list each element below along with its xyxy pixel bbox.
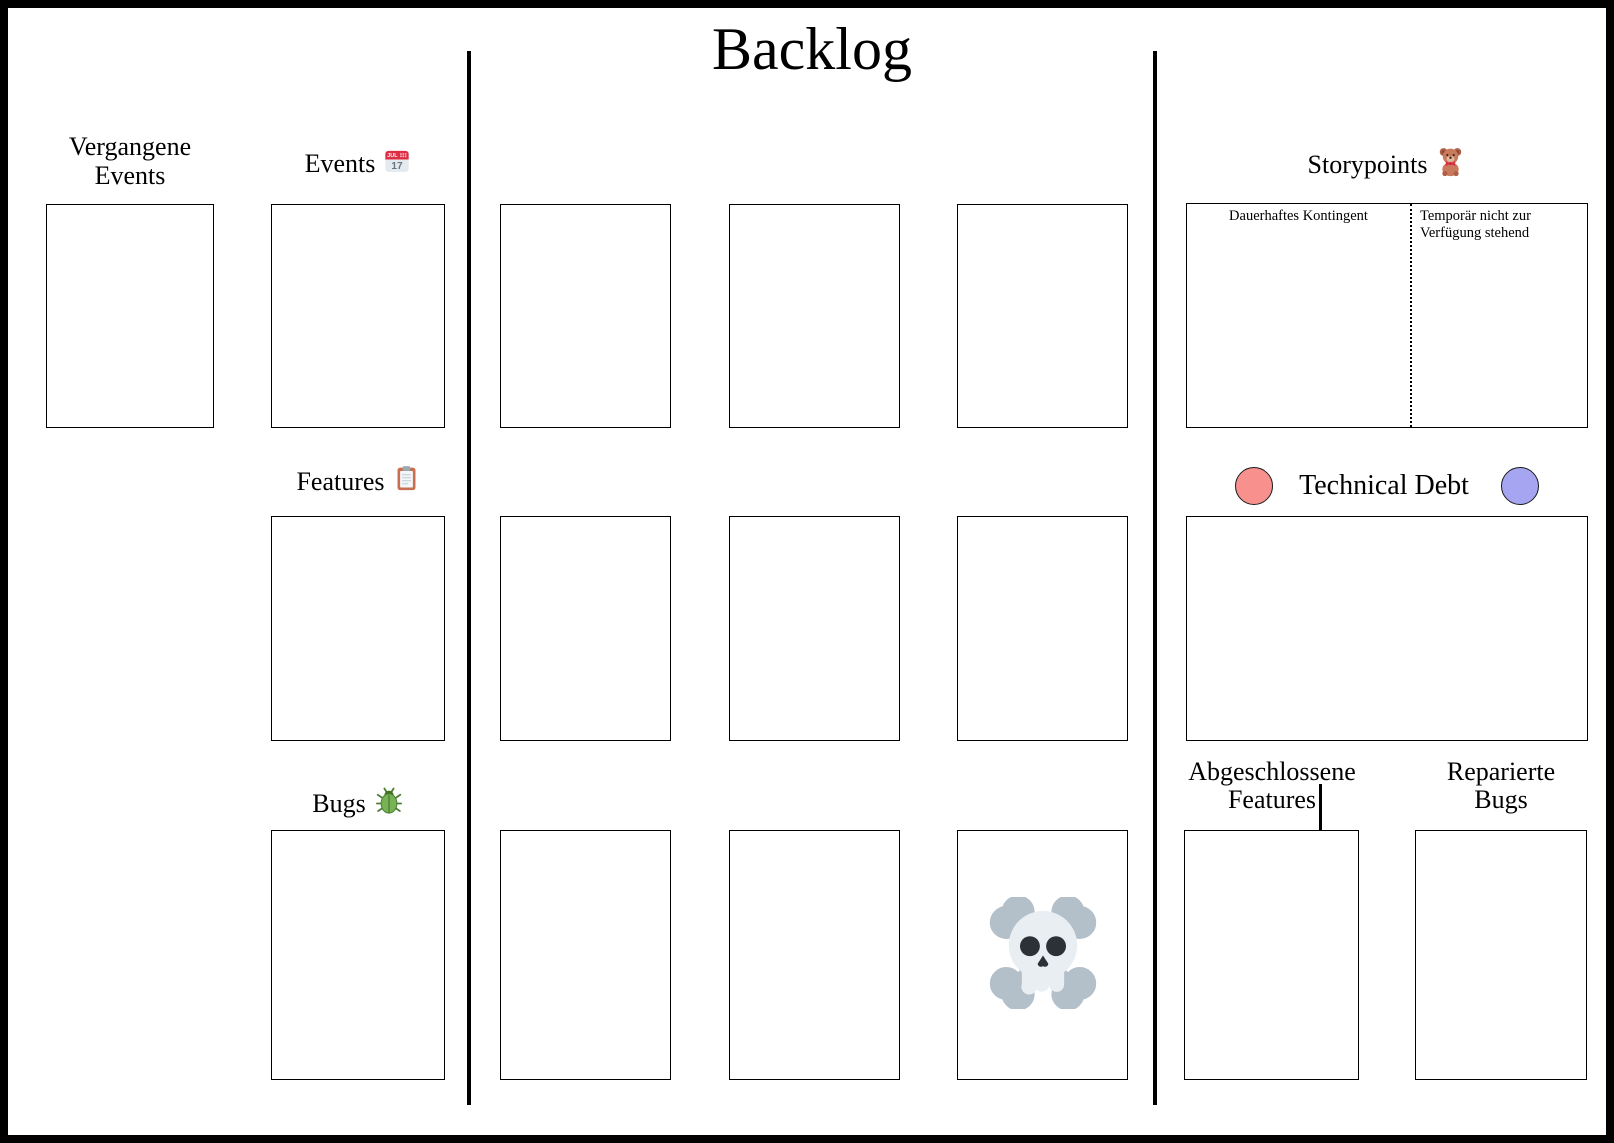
storypoints-dotted-divider [1410,204,1412,427]
storypoints-temporary-line1: Temporär nicht zur [1420,208,1580,225]
storypoints-label: Storypoints [1308,150,1428,180]
svg-text:17: 17 [392,160,404,171]
features-label-row: Features [271,464,445,500]
events-box[interactable] [271,204,445,428]
past-events-label-line1: Vergangene [40,132,220,161]
technical-debt-label: Technical Debt [1278,470,1490,502]
beetle-icon [374,786,404,823]
past-events-box[interactable] [46,204,214,428]
completed-features-box[interactable] [1184,830,1359,1080]
card-slot-2[interactable] [729,204,900,428]
bugs-box[interactable] [271,830,445,1080]
features-box[interactable] [271,516,445,741]
red-token-circle[interactable] [1235,467,1273,505]
repaired-bugs-label: Reparierte Bugs [1405,758,1597,814]
card-slot-3[interactable] [957,204,1128,428]
board-title: Backlog [469,12,1155,87]
backlog-game-board: Backlog Vergangene Events Events JUL 17 … [0,0,1614,1143]
past-events-label: Vergangene Events [40,132,220,190]
repaired-bugs-label-line2: Bugs [1405,786,1597,814]
column-divider-right [1153,51,1157,1105]
card-slot-4[interactable] [500,516,671,741]
text-caret [1319,784,1322,832]
events-label: Events [305,149,376,179]
svg-text:JUL: JUL [388,153,399,159]
past-events-label-line2: Events [40,161,220,190]
storypoints-permanent-zone-label: Dauerhaftes Kontingent [1187,208,1410,225]
completed-features-label-line2: Features [1176,786,1368,814]
features-label: Features [296,467,384,497]
storypoints-temporary-zone-label: Temporär nicht zur Verfügung stehend [1420,208,1580,242]
card-slot-8[interactable] [729,830,900,1080]
storypoints-label-row: Storypoints [1186,146,1588,184]
repaired-bugs-label-line1: Reparierte [1405,758,1597,786]
card-slot-7[interactable] [500,830,671,1080]
card-slot-1[interactable] [500,204,671,428]
technical-debt-box[interactable] [1186,516,1588,741]
completed-features-label: Abgeschlossene Features [1176,758,1368,814]
bugs-label: Bugs [312,789,365,819]
bugs-label-row: Bugs [271,786,445,822]
completed-features-label-line1: Abgeschlossene [1176,758,1368,786]
card-slot-9-danger[interactable] [957,830,1128,1080]
teddy-bear-icon [1435,146,1466,184]
storypoints-temporary-line2: Verfügung stehend [1420,225,1580,242]
repaired-bugs-box[interactable] [1415,830,1587,1080]
clipboard-icon [393,464,420,500]
purple-token-circle[interactable] [1501,467,1539,505]
events-label-row: Events JUL 17 [271,146,445,182]
skull-crossbones-icon [987,897,1099,1014]
calendar-icon: JUL 17 [383,147,411,182]
storypoints-box[interactable]: Dauerhaftes Kontingent Temporär nicht zu… [1186,203,1588,428]
column-divider-left [467,51,471,1105]
card-slot-6[interactable] [957,516,1128,741]
card-slot-5[interactable] [729,516,900,741]
